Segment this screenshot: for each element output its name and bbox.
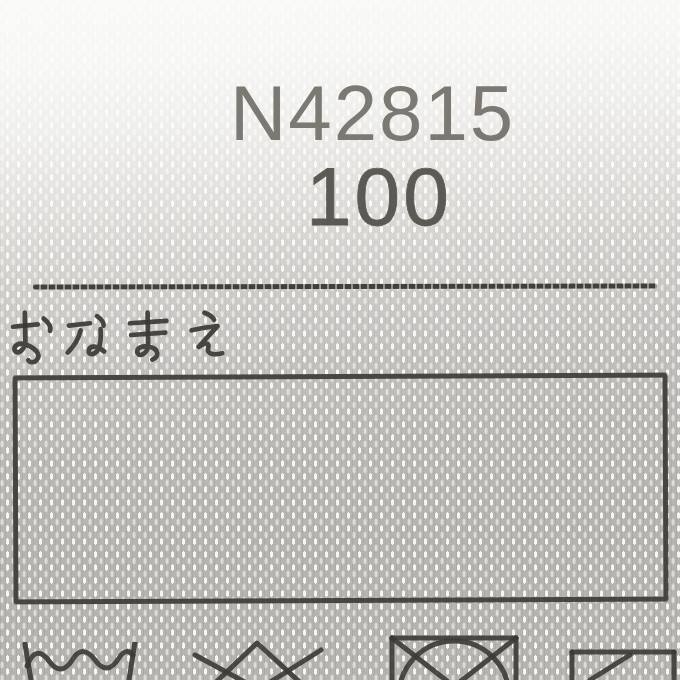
name-field-label-text: おなまえ [241, 309, 242, 310]
name-box-value [18, 378, 664, 600]
divider-line [33, 283, 657, 289]
kana-e [192, 313, 223, 355]
onamae-kana-lettering [6, 309, 241, 371]
kana-na [68, 316, 104, 354]
size-label: 100 [306, 150, 452, 244]
do-not-tumble-dry-icon [386, 630, 522, 680]
product-code: N42815 [230, 68, 515, 159]
name-box [13, 373, 669, 605]
clothing-tag-photo: N42815 100 [0, 0, 680, 680]
kana-o [13, 313, 50, 363]
name-field-label: おなまえ [6, 309, 241, 371]
wash-tub-icon [19, 642, 141, 680]
kana-ma [130, 313, 166, 360]
do-not-bleach-triangle-icon [190, 638, 328, 680]
dry-in-shade-square-icon [564, 646, 678, 680]
